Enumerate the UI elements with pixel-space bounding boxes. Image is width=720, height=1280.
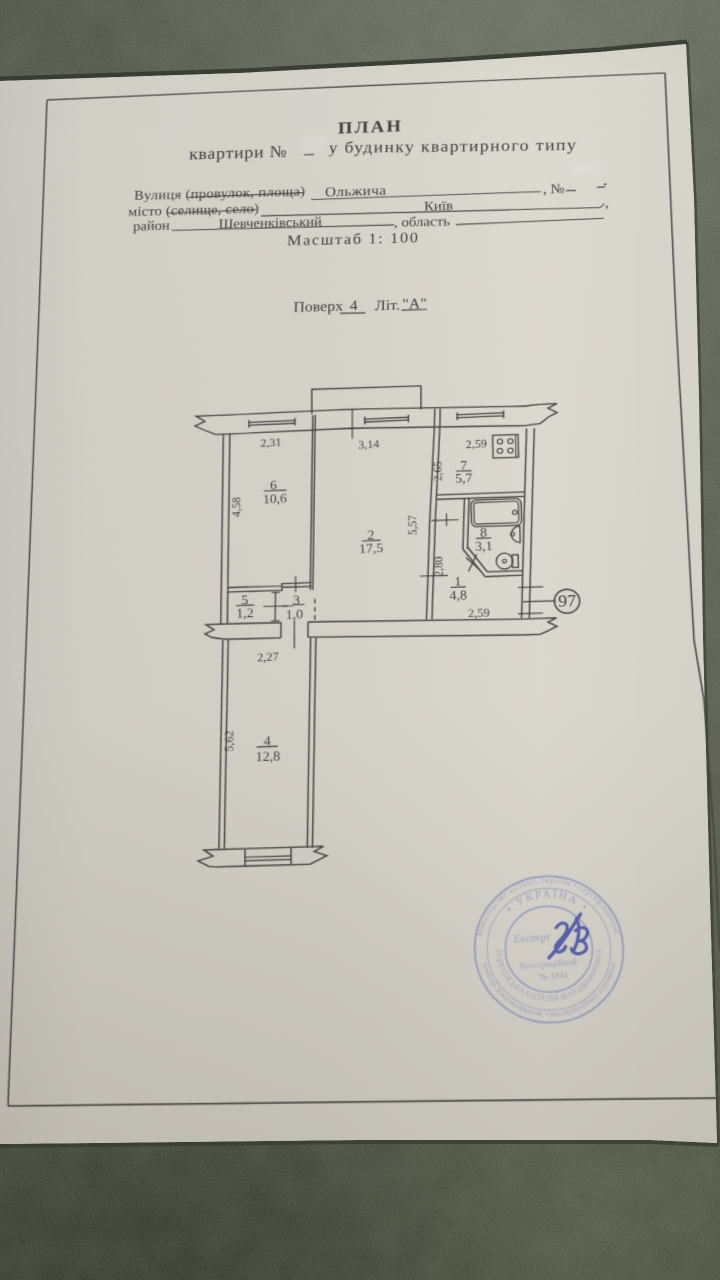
svg-text:№ 1841: № 1841 (538, 969, 569, 982)
svg-text:97: 97 (558, 593, 577, 611)
svg-text:4,58: 4,58 (231, 497, 244, 517)
svg-text:12,8: 12,8 (256, 748, 281, 765)
svg-text:Масштаб 1: 100: Масштаб 1: 100 (287, 230, 420, 249)
svg-text:3,1: 3,1 (475, 538, 493, 554)
svg-text:Вулиця (провулок, площа): Вулиця (провулок, площа) (134, 183, 306, 202)
svg-text:Поверх: Поверх (293, 298, 343, 316)
svg-text:5,62: 5,62 (223, 730, 236, 751)
svg-text:Експерт: Експерт (513, 930, 551, 945)
svg-text:4,8: 4,8 (449, 587, 467, 603)
svg-text:17,5: 17,5 (359, 540, 384, 556)
svg-text:5,7: 5,7 (455, 470, 473, 486)
svg-text:2,31: 2,31 (260, 437, 281, 450)
svg-text:1,2: 1,2 (236, 605, 253, 621)
svg-text:ПЛАН: ПЛАН (338, 116, 403, 137)
svg-text:10,6: 10,6 (263, 490, 287, 506)
svg-text:2,80: 2,80 (433, 556, 446, 577)
svg-text:4: 4 (350, 298, 359, 315)
svg-text:2,59: 2,59 (468, 607, 490, 620)
svg-text:,: , (605, 195, 609, 210)
svg-text:3,14: 3,14 (358, 439, 380, 452)
svg-text:1,0: 1,0 (286, 606, 304, 622)
svg-text:2,65: 2,65 (432, 461, 445, 481)
svg-text:2,27: 2,27 (257, 652, 279, 665)
svg-text:, №: , № (543, 181, 565, 197)
svg-text:у будинку квартирного типу: у будинку квартирного типу (328, 137, 577, 157)
svg-text:5,57: 5,57 (407, 515, 420, 535)
svg-text:квартири №: квартири № (189, 142, 288, 164)
svg-text:, область: , область (394, 213, 450, 229)
svg-text:район: район (133, 218, 170, 234)
svg-text:Літ.: Літ. (375, 297, 400, 314)
svg-text:2,59: 2,59 (465, 438, 487, 451)
